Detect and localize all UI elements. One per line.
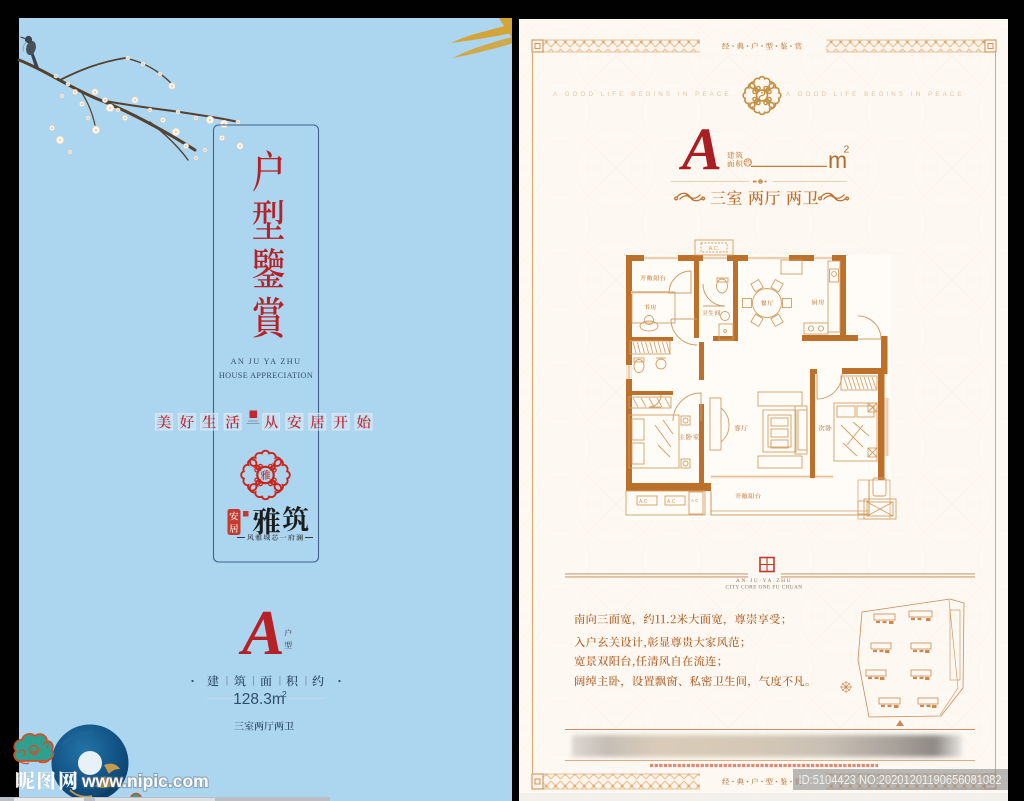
svg-text:www.nipic.com: www.nipic.com [81, 771, 209, 791]
svg-text:AN·JU·YA·ZHU: AN·JU·YA·ZHU [736, 578, 792, 584]
svg-text:2: 2 [282, 689, 287, 699]
svg-text:AN JU YA ZHU: AN JU YA ZHU [231, 357, 302, 366]
svg-text:CITY CORE ONE FU CHUAN: CITY CORE ONE FU CHUAN [726, 585, 803, 591]
svg-text:2: 2 [844, 144, 850, 156]
svg-text:A GOOD LIFE BEGINS IN PEACE: A GOOD LIFE BEGINS IN PEACE [786, 91, 965, 98]
svg-text:A.C: A.C [639, 499, 648, 505]
svg-text:ID:5104423 NO:2020120119065608: ID:5104423 NO:20201201190656081082 [799, 772, 1002, 787]
svg-text:HOUSE APPRECIATION: HOUSE APPRECIATION [219, 371, 313, 380]
svg-text:A GOOD LIFE BEGINS IN PEACE: A GOOD LIFE BEGINS IN PEACE [553, 91, 732, 98]
svg-text:128.3m: 128.3m [233, 691, 285, 708]
svg-text:A.C: A.C [667, 499, 676, 505]
svg-text:A: A [678, 116, 722, 182]
svg-text:A.C: A.C [691, 498, 699, 503]
svg-text:A.C.: A.C. [709, 246, 720, 252]
svg-text:A: A [238, 597, 285, 668]
